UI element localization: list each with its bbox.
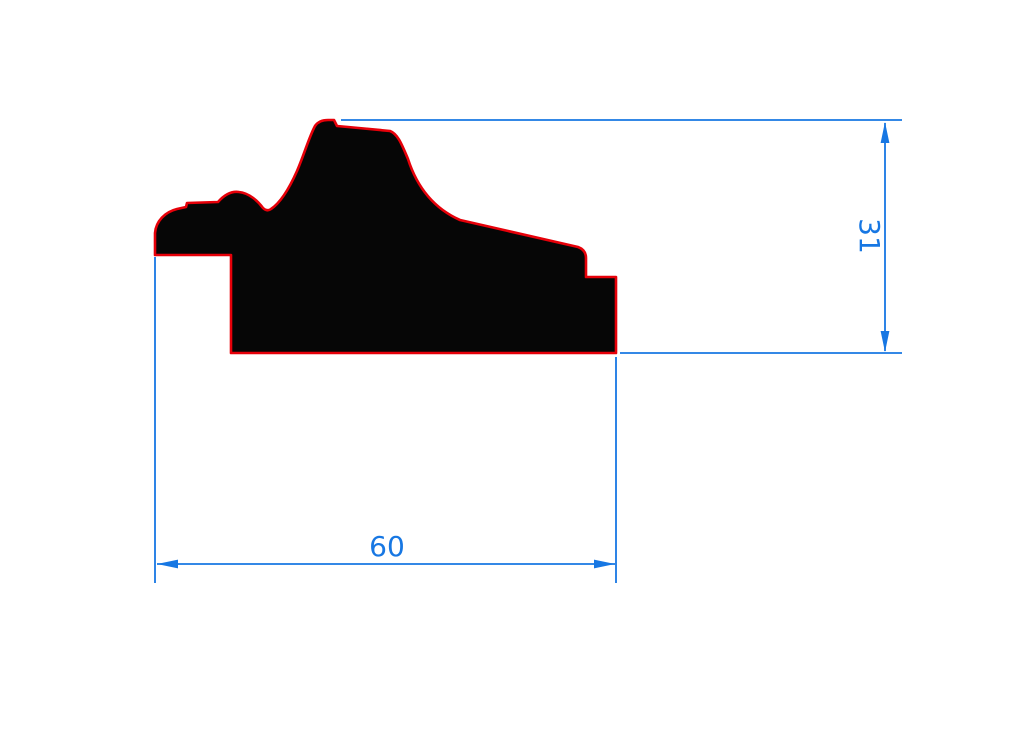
- drawing-canvas: 60 31: [0, 0, 1024, 740]
- arrow-left-icon: [157, 560, 178, 569]
- moulding-profile-shape: [155, 120, 616, 353]
- width-dimension-label: 60: [369, 530, 405, 563]
- arrow-right-icon: [594, 560, 615, 569]
- arrow-down-icon: [881, 331, 890, 352]
- arrow-up-icon: [881, 122, 890, 143]
- height-dimension-label: 31: [853, 218, 886, 254]
- profile-drawing: 60 31: [0, 0, 1024, 740]
